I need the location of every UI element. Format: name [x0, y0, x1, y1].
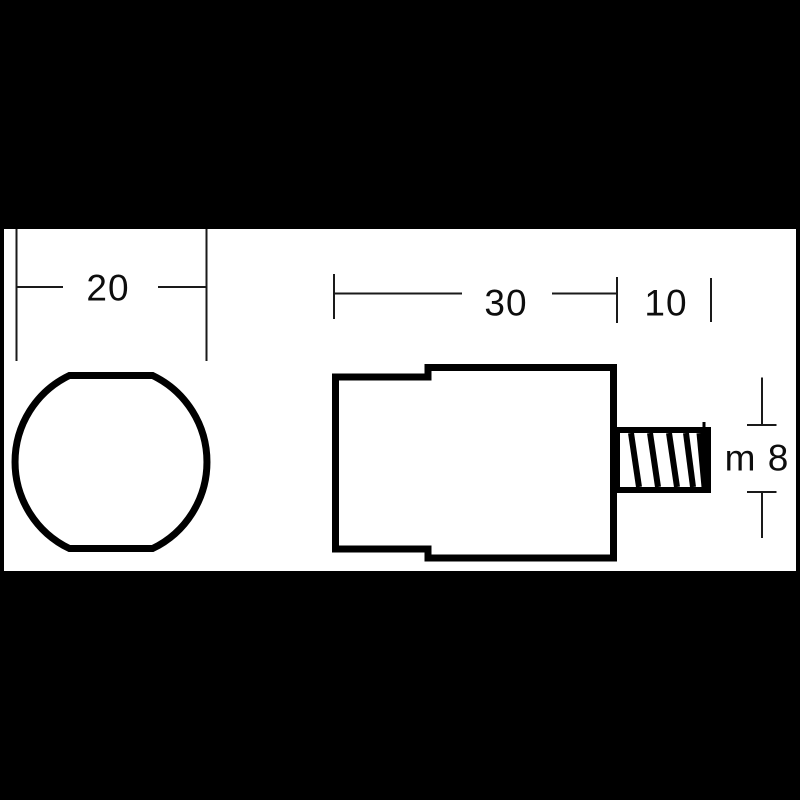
dim-30-label: 30: [484, 285, 527, 322]
side-view: [336, 368, 709, 559]
dim-20-label: 20: [86, 270, 129, 307]
scanned-technical-drawing: 20 30 10 m 8: [0, 0, 800, 800]
side-view-body-outline: [336, 368, 614, 559]
dim-10-label: 10: [644, 285, 687, 322]
thread-size-label: m 8: [725, 440, 790, 477]
front-view: [15, 376, 207, 549]
technical-drawing-linework: [0, 0, 800, 800]
front-view-outline: [15, 376, 207, 549]
